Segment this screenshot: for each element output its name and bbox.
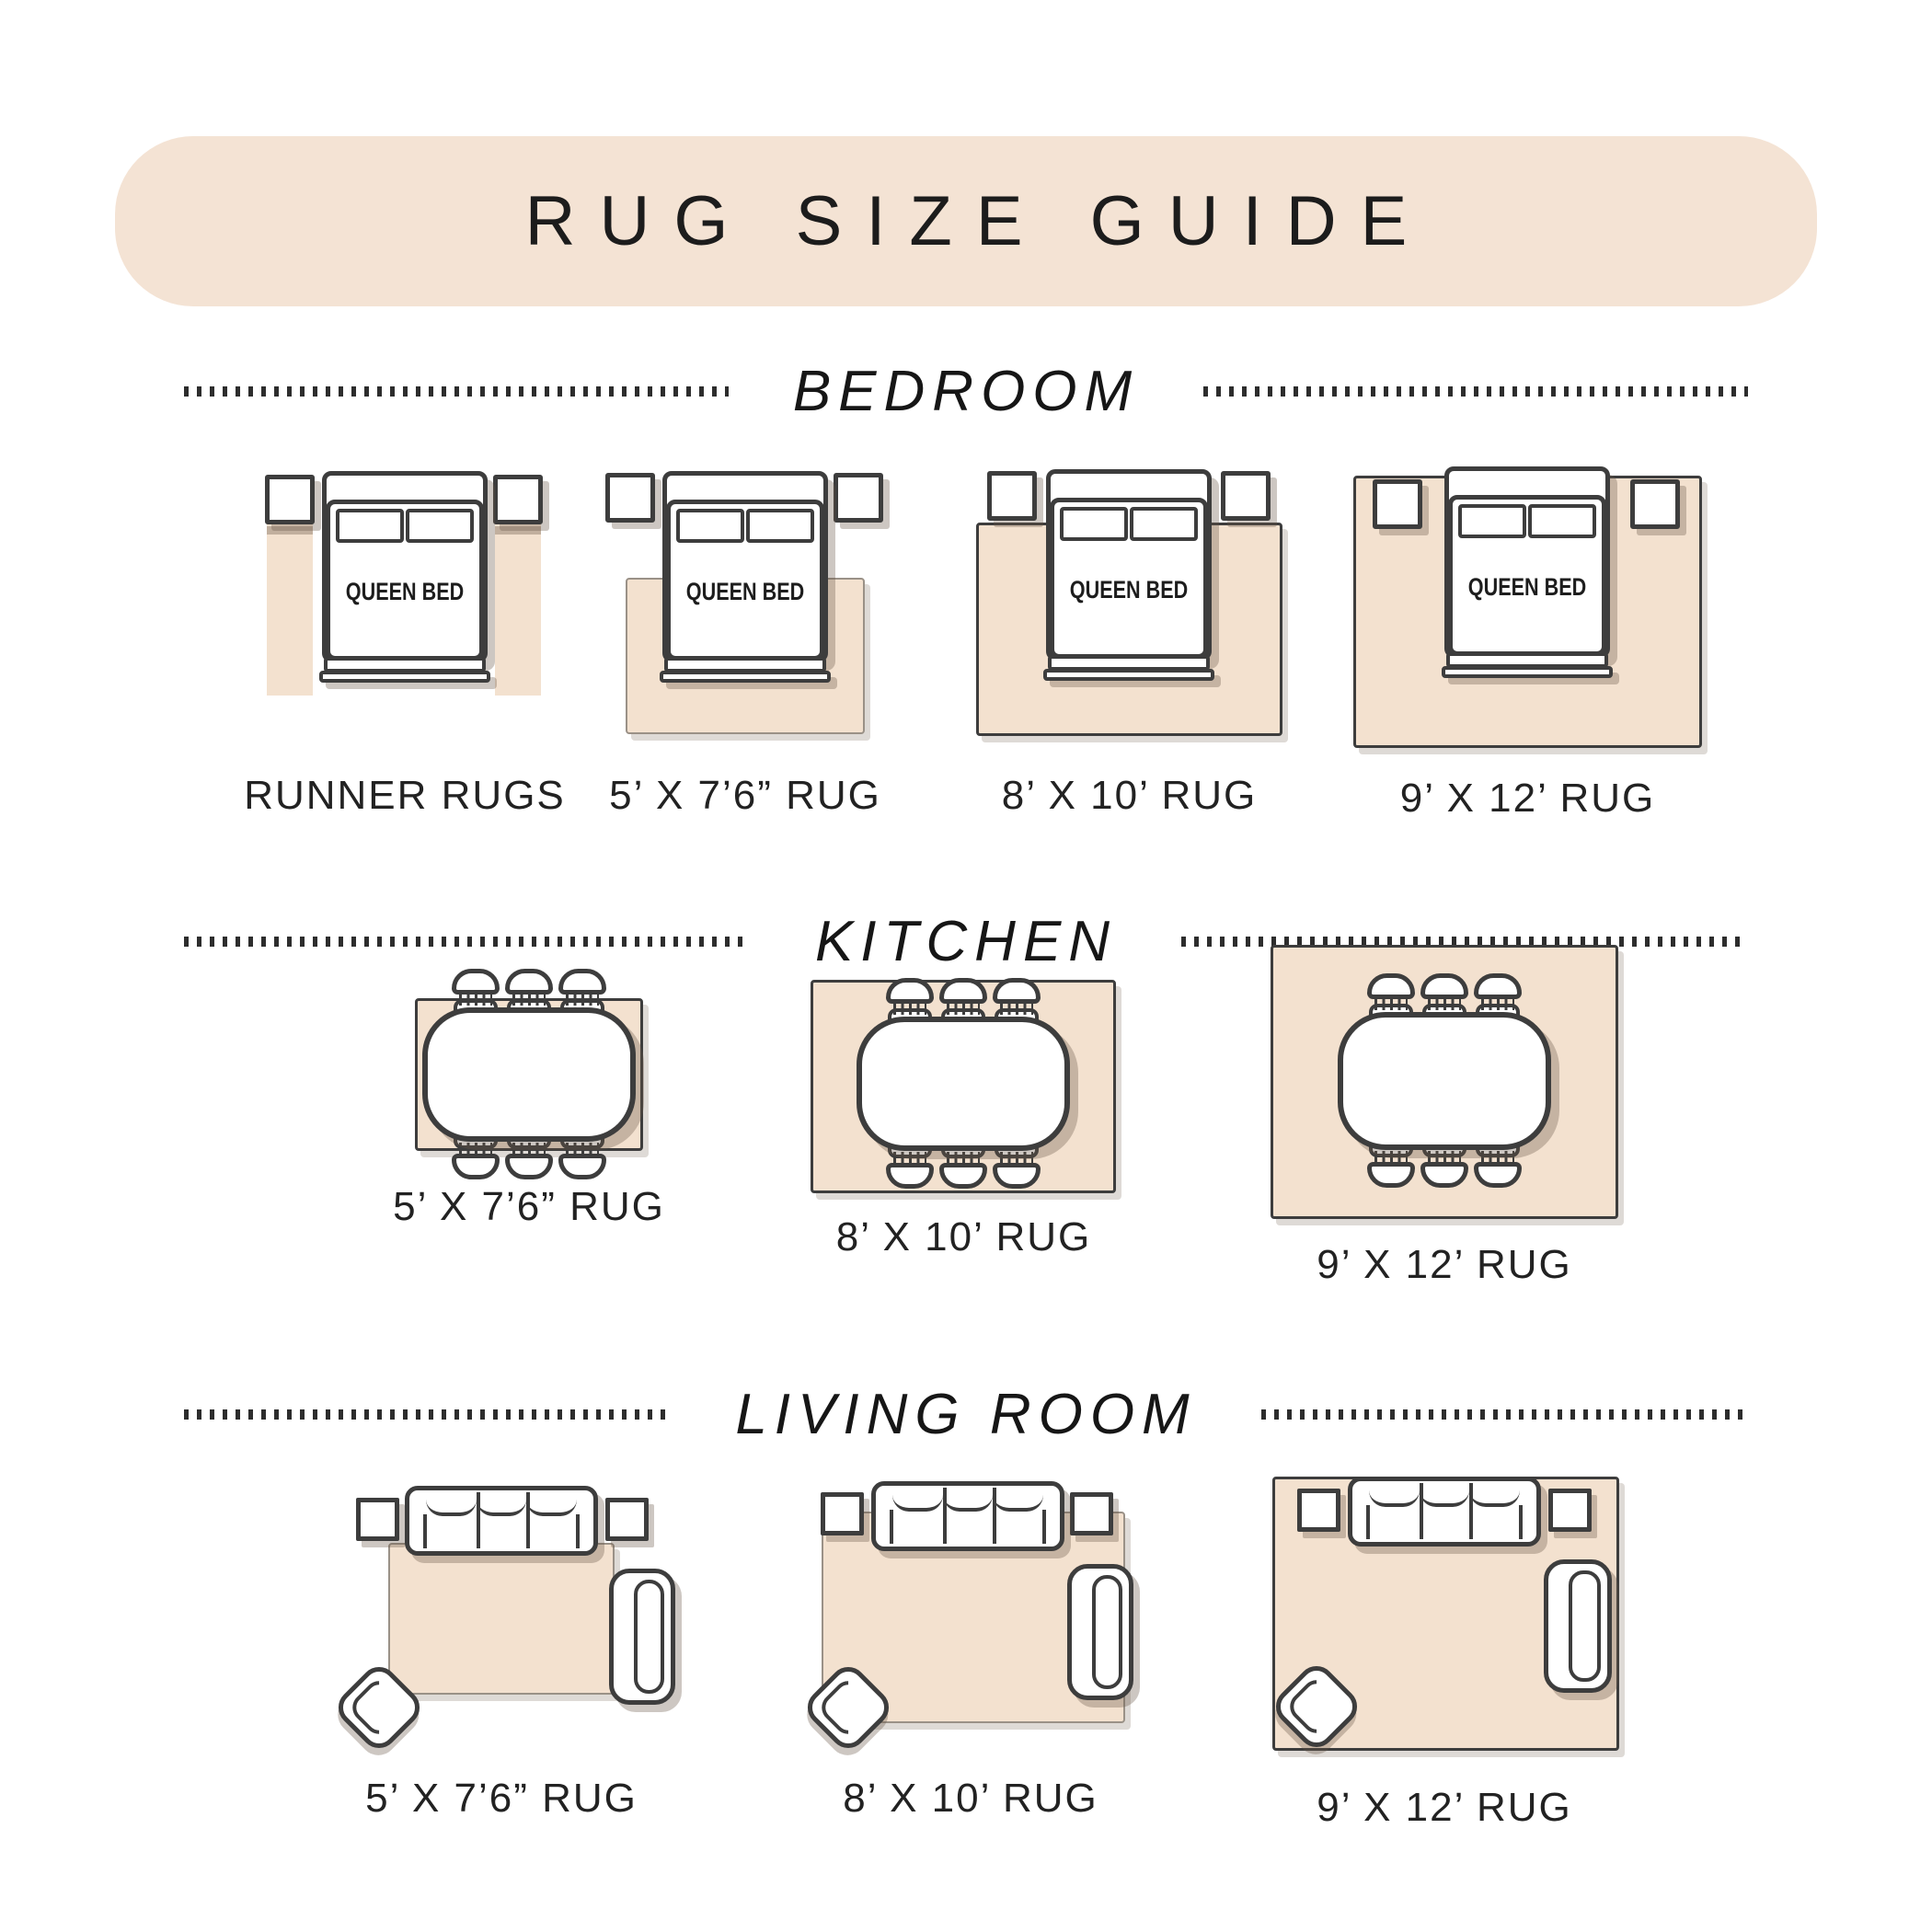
title-banner: RUG SIZE GUIDE: [115, 136, 1817, 306]
pillow-left: [1458, 504, 1526, 538]
sofa-cushion-divider: [943, 1488, 947, 1544]
sofa-back-cushions: [1369, 1483, 1520, 1507]
section-heading-bedroom: BEDROOM: [793, 359, 1139, 424]
dotted-divider-right: [1261, 1409, 1748, 1420]
armchair: [609, 1569, 675, 1705]
diagram-label: 8’ X 10’ RUG: [915, 773, 1343, 819]
bed-foot-bench: [319, 671, 490, 683]
section-header-living-room: LIVING ROOM: [184, 1382, 1748, 1446]
side-table-left: [356, 1498, 399, 1541]
queen-bed: QUEEN BED: [662, 471, 828, 684]
armchair: [1067, 1564, 1133, 1700]
side-table-left: [821, 1492, 864, 1535]
sofa-cushion-divider: [477, 1492, 480, 1548]
pillow-right: [746, 509, 814, 543]
bed-foot-bench: [660, 671, 831, 683]
nightstand-left: [265, 475, 315, 524]
page-title: RUG SIZE GUIDE: [115, 136, 1817, 306]
pillow-right: [1130, 507, 1198, 541]
dining-table: [1338, 1012, 1551, 1150]
diagram-label: 9’ X 12’ RUG: [1210, 1242, 1679, 1288]
bedroom-diagram-8x10-rug: QUEEN BED 8’ X 10’ RUG: [971, 469, 1288, 819]
bed-foot-bench: [1442, 666, 1613, 678]
armchair-cushion: [1569, 1570, 1601, 1682]
dotted-divider-left: [184, 386, 729, 397]
pillow-right: [406, 509, 474, 543]
dining-table: [857, 1017, 1070, 1151]
runner-rug-right: [495, 502, 541, 696]
dotted-divider-left: [184, 1409, 671, 1420]
sofa-cushion-divider: [526, 1492, 530, 1548]
bed-label: QUEEN BED: [679, 578, 811, 606]
living-diagram-8x10-rug: 8’ X 10’ RUG: [791, 1472, 1150, 1831]
bed-label: QUEEN BED: [1063, 576, 1195, 604]
nightstand-right: [493, 475, 543, 524]
living-diagram-9x12-rug: 9’ X 12’ RUG: [1260, 1467, 1628, 1831]
bedroom-diagram-5x76-rug: QUEEN BED 5’ X 7’6” RUG: [598, 469, 892, 819]
pillow-left: [1060, 507, 1128, 541]
diagram-label: 8’ X 10’ RUG: [736, 1776, 1205, 1822]
diagram-label: 9’ X 12’ RUG: [1205, 1785, 1684, 1831]
side-table-right: [605, 1498, 649, 1541]
sofa: [405, 1486, 598, 1556]
runner-rug-left: [267, 502, 313, 696]
diagram-label: 8’ X 10’ RUG: [750, 1214, 1178, 1260]
section-heading-living-room: LIVING ROOM: [735, 1382, 1196, 1447]
kitchen-diagram-8x10-rug: 8’ X 10’ RUG: [805, 957, 1122, 1260]
side-table-left: [1297, 1489, 1340, 1532]
sofa: [1348, 1477, 1541, 1547]
armchair-cushion: [634, 1580, 664, 1694]
bed-label: QUEEN BED: [1461, 573, 1593, 602]
side-table-right: [1070, 1492, 1113, 1535]
diagram-label: 5’ X 7’6” RUG: [267, 1776, 736, 1822]
sofa-arm-left: [1366, 1505, 1370, 1539]
bedroom-diagram-9x12-rug: QUEEN BED 9’ X 12’ RUG: [1351, 465, 1705, 819]
accent-chair-back: [816, 1675, 881, 1741]
sofa-arm-left: [890, 1510, 893, 1544]
bed-foot-bench: [1043, 669, 1214, 681]
side-table-right: [1548, 1489, 1592, 1532]
armchair-cushion: [1092, 1575, 1122, 1689]
queen-bed: QUEEN BED: [1046, 469, 1212, 683]
pillow-right: [1528, 504, 1596, 538]
sofa-arm-right: [1519, 1505, 1523, 1539]
sofa-arm-left: [423, 1514, 427, 1548]
nightstand-right: [1630, 479, 1680, 529]
section-header-bedroom: BEDROOM: [184, 359, 1748, 423]
sofa-cushion-divider: [1420, 1483, 1423, 1539]
dining-table: [422, 1007, 636, 1142]
bedroom-diagram-runner-rugs: QUEEN BED RUNNER RUGS: [258, 469, 552, 819]
pillow-left: [676, 509, 744, 543]
queen-bed: QUEEN BED: [1444, 466, 1610, 680]
sofa: [871, 1481, 1064, 1551]
pillow-left: [336, 509, 404, 543]
sofa-back-cushions: [892, 1488, 1043, 1512]
queen-bed: QUEEN BED: [322, 471, 488, 684]
area-rug: [388, 1543, 615, 1695]
accent-chair-back: [1284, 1674, 1350, 1740]
nightstand-left: [987, 471, 1037, 521]
diagram-label: 5’ X 7’6” RUG: [543, 773, 948, 819]
nightstand-right: [1221, 471, 1271, 521]
nightstand-left: [605, 473, 655, 523]
sofa-cushion-divider: [1469, 1483, 1473, 1539]
diagram-label: 5’ X 7’6” RUG: [350, 1184, 708, 1230]
armchair: [1544, 1559, 1612, 1693]
sofa-back-cushions: [426, 1492, 577, 1516]
dotted-divider-left: [184, 937, 751, 947]
sofa-cushion-divider: [993, 1488, 996, 1544]
sofa-arm-right: [576, 1514, 580, 1548]
kitchen-diagram-5x76-rug: 5’ X 7’6” RUG: [405, 971, 653, 1247]
living-diagram-5x76-rug: 5’ X 7’6” RUG: [322, 1472, 681, 1831]
kitchen-diagram-9x12-rug: 9’ X 12’ RUG: [1265, 925, 1624, 1293]
nightstand-left: [1373, 479, 1422, 529]
diagram-label: 9’ X 12’ RUG: [1295, 776, 1760, 822]
nightstand-right: [834, 473, 883, 523]
sofa-arm-right: [1042, 1510, 1046, 1544]
bed-label: QUEEN BED: [339, 578, 471, 606]
dotted-divider-right: [1203, 386, 1748, 397]
accent-chair-back: [347, 1675, 412, 1741]
